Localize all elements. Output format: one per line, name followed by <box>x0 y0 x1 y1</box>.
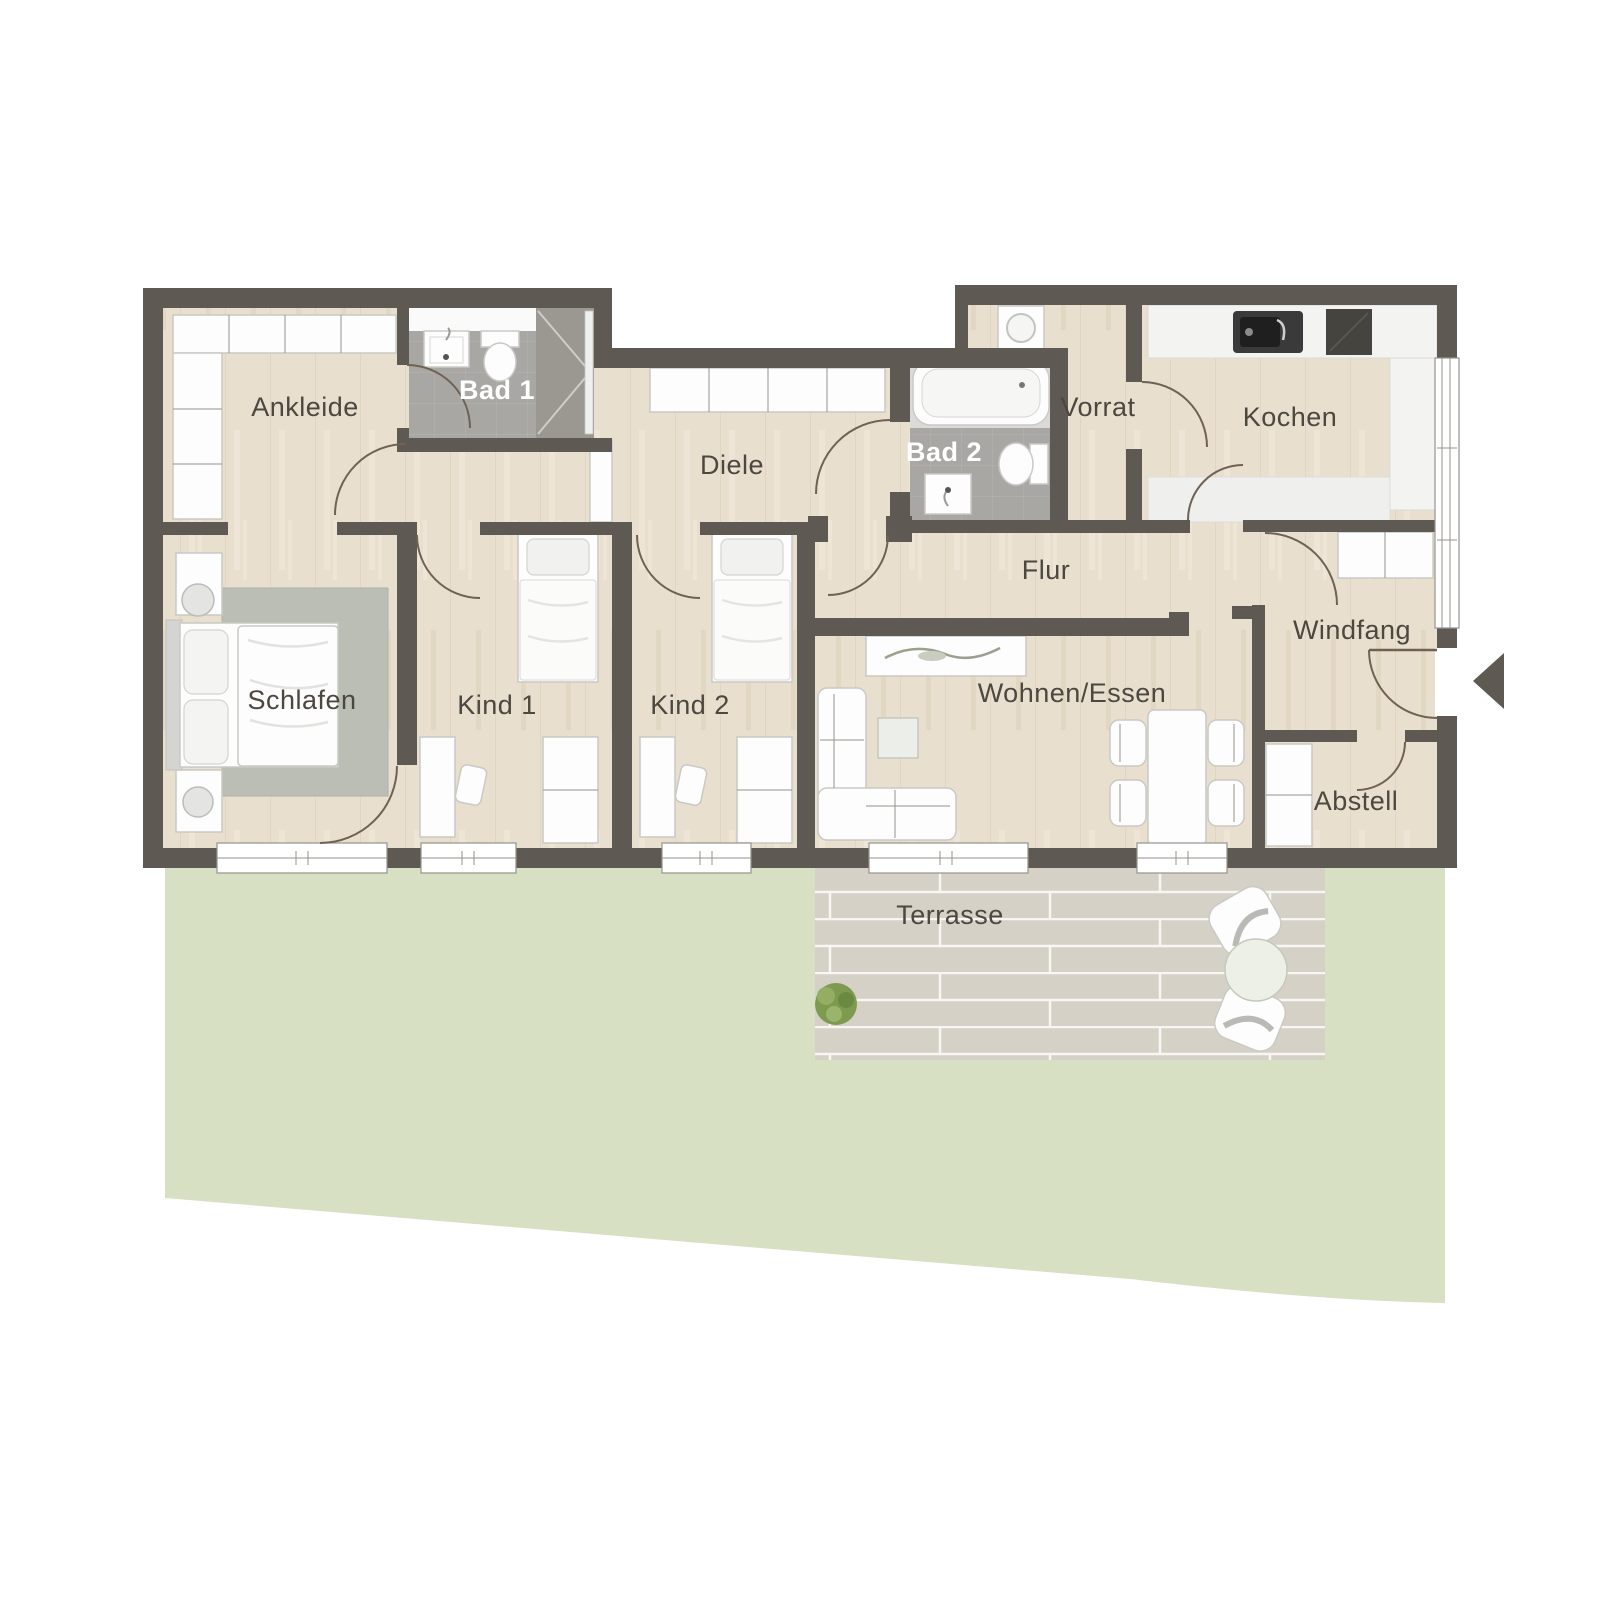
fridge <box>1266 744 1312 846</box>
room-label-kochen: Kochen <box>1243 402 1338 432</box>
bathtub <box>913 361 1049 425</box>
toilet <box>999 443 1048 485</box>
desk <box>640 737 675 837</box>
window <box>662 843 751 873</box>
kitchen-counter-right <box>1390 358 1437 510</box>
window <box>217 843 387 873</box>
kitchen-sink <box>1233 311 1303 353</box>
room-label-ankleide: Ankleide <box>251 392 359 422</box>
terrace-door <box>869 843 1028 873</box>
cabinet <box>737 737 792 843</box>
room-label-windfang: Windfang <box>1293 615 1411 645</box>
kitchen-counter-low <box>1148 477 1390 522</box>
terrace-table <box>1225 939 1287 1001</box>
entrance-arrow-icon <box>1473 653 1504 709</box>
window <box>1435 358 1459 628</box>
room-label-bad1: Bad 1 <box>459 375 535 405</box>
cabinet <box>543 737 598 843</box>
nightstand <box>176 553 222 616</box>
terrace <box>815 862 1325 1060</box>
floor-plan-page: Ankleide Bad 1 Schlafen Kind 1 Kind 2 Di… <box>0 0 1600 1600</box>
plant <box>815 983 857 1025</box>
room-label-schlafen: Schlafen <box>247 685 356 715</box>
window <box>1137 843 1227 873</box>
washing-machine <box>998 306 1044 350</box>
nightstand <box>176 770 222 832</box>
entrance-opening <box>1435 648 1459 716</box>
coffee-table <box>878 718 918 758</box>
room-label-wohnen-essen: Wohnen/Essen <box>978 678 1167 708</box>
room-label-diele: Diele <box>700 450 764 480</box>
toilet <box>481 331 519 381</box>
sink <box>925 474 971 514</box>
shoe-cabinet <box>1338 532 1433 578</box>
room-label-vorrat: Vorrat <box>1060 392 1135 422</box>
single-bed <box>518 532 598 682</box>
window <box>421 843 516 873</box>
room-label-kind2: Kind 2 <box>650 690 730 720</box>
sideboard <box>866 636 1026 676</box>
room-label-terrasse: Terrasse <box>896 900 1004 930</box>
floor-plan: Ankleide Bad 1 Schlafen Kind 1 Kind 2 Di… <box>0 0 1600 1600</box>
room-label-flur: Flur <box>1022 555 1071 585</box>
room-label-bad2: Bad 2 <box>906 437 982 467</box>
tall-cabinet <box>590 440 612 522</box>
sink <box>424 328 469 367</box>
sideboard <box>650 368 885 412</box>
desk <box>420 737 455 837</box>
room-label-kind1: Kind 1 <box>457 690 537 720</box>
single-bed <box>712 532 792 682</box>
room-label-abstell: Abstell <box>1314 786 1399 816</box>
